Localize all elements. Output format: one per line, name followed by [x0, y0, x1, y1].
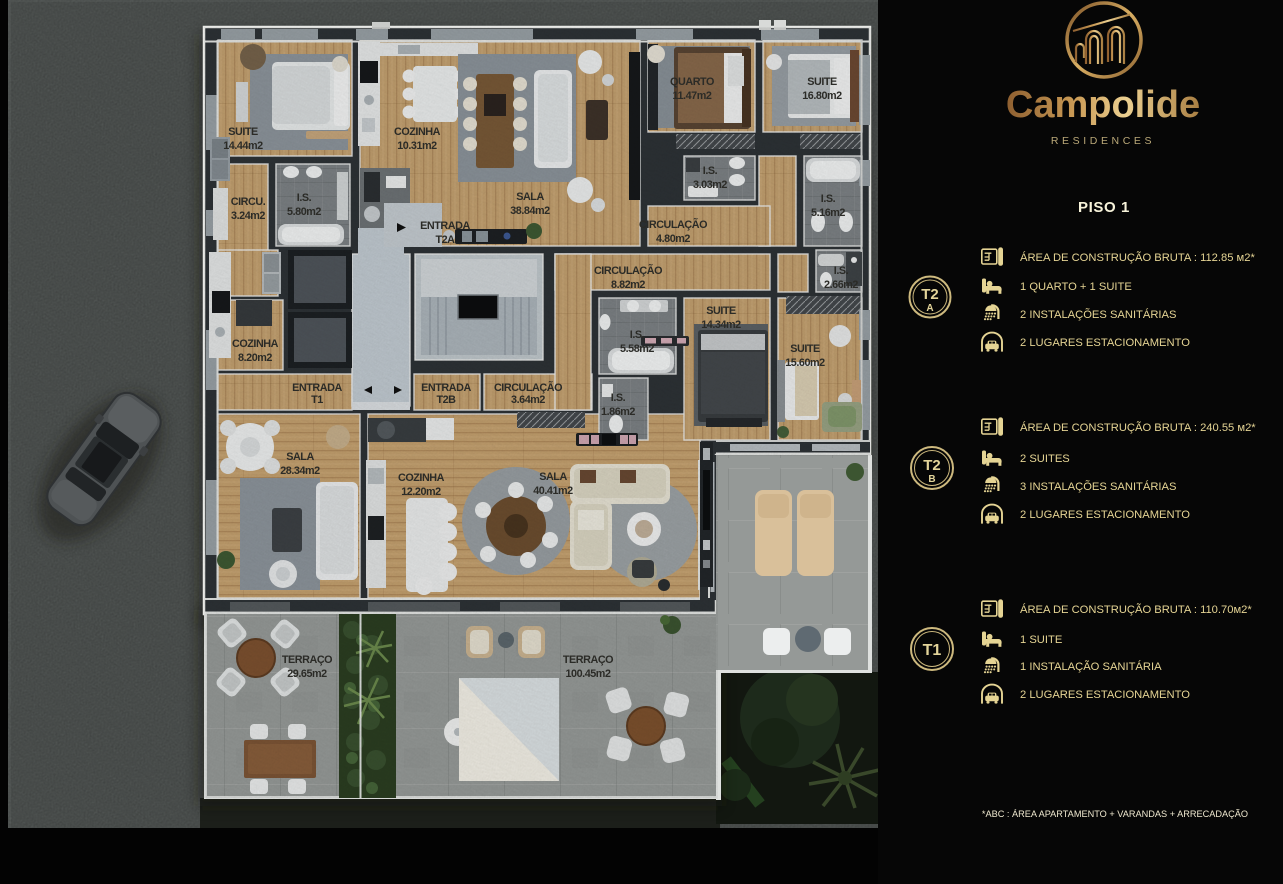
svg-text:12.20m2: 12.20m2: [401, 486, 441, 498]
svg-text:11.47m2: 11.47m2: [673, 90, 712, 102]
svg-text:I.S.: I.S.: [703, 165, 718, 177]
svg-text:SALA: SALA: [539, 471, 567, 483]
svg-text:CIRCULAÇÃO: CIRCULAÇÃO: [594, 264, 662, 277]
svg-text:I.S.: I.S.: [611, 392, 626, 404]
svg-text:ÁREA DE CONSTRUÇÃO BRUTA : 11: ÁREA DE CONSTRUÇÃO BRUTA : 112.85 м2*: [1020, 251, 1255, 264]
svg-text:SUITE: SUITE: [807, 76, 837, 88]
svg-text:T2: T2: [923, 457, 941, 474]
svg-text:5.16m2: 5.16m2: [811, 207, 845, 219]
svg-text:28.34m2: 28.34m2: [280, 465, 320, 477]
svg-text:A: A: [926, 303, 933, 314]
svg-text:I.S.: I.S.: [630, 329, 645, 341]
svg-text:TERRAÇO: TERRAÇO: [563, 654, 613, 666]
svg-text:2 LUGARES ESTACIONAMENTO: 2 LUGARES ESTACIONAMENTO: [1020, 337, 1190, 349]
svg-text:8.82m2: 8.82m2: [611, 279, 645, 291]
svg-text:3 INSTALAÇÕES SANITÁRIAS: 3 INSTALAÇÕES SANITÁRIAS: [1020, 480, 1176, 493]
svg-text:14.44m2: 14.44m2: [223, 140, 263, 152]
svg-text:I.S.: I.S.: [297, 192, 312, 204]
svg-text:1.86m2: 1.86m2: [601, 406, 635, 418]
svg-text:SALA: SALA: [286, 451, 314, 463]
svg-text:*ABC : ÁREA APARTAMENTO + VAR: *ABC : ÁREA APARTAMENTO + VARANDAS + ARR…: [982, 809, 1248, 819]
svg-text:B: B: [928, 474, 935, 485]
svg-text:SUITE: SUITE: [790, 343, 820, 355]
svg-text:COZINHA: COZINHA: [398, 472, 445, 484]
svg-text:ÁREA DE CONSTRUÇÃO BRUTA : 24: ÁREA DE CONSTRUÇÃO BRUTA : 240.55 м2*: [1020, 421, 1256, 434]
svg-text:I.S.: I.S.: [821, 193, 836, 205]
svg-text:1 QUARTO + 1 SUITE: 1 QUARTO + 1 SUITE: [1020, 281, 1132, 293]
svg-text:2 INSTALAÇÕES SANITÁRIAS: 2 INSTALAÇÕES SANITÁRIAS: [1020, 308, 1176, 321]
svg-text:5.80m2: 5.80m2: [287, 206, 321, 218]
svg-text:ENTRADA: ENTRADA: [421, 382, 471, 394]
svg-text:2 LUGARES ESTACIONAMENTO: 2 LUGARES ESTACIONAMENTO: [1020, 509, 1190, 521]
svg-text:SUITE: SUITE: [706, 305, 736, 317]
svg-text:T1: T1: [311, 394, 323, 406]
svg-text:I.S.: I.S.: [834, 265, 849, 277]
svg-text:SALA: SALA: [516, 191, 544, 203]
svg-text:5.58m2: 5.58m2: [620, 343, 654, 355]
svg-text:QUARTO: QUARTO: [670, 76, 714, 88]
svg-text:4.80m2: 4.80m2: [656, 233, 690, 245]
svg-text:40.41m2: 40.41m2: [533, 485, 573, 497]
svg-text:16.80m2: 16.80m2: [802, 90, 842, 102]
svg-text:1 SUITE: 1 SUITE: [1020, 634, 1062, 646]
svg-text:PISO 1: PISO 1: [1078, 199, 1130, 216]
svg-text:T2A: T2A: [435, 234, 455, 246]
svg-text:3.24m2: 3.24m2: [231, 210, 265, 222]
svg-text:CIRCULAÇÃO: CIRCULAÇÃO: [639, 218, 707, 231]
svg-text:Campolide: Campolide: [1006, 84, 1200, 126]
svg-text:14.34m2: 14.34m2: [701, 319, 741, 331]
svg-text:RESIDENCES: RESIDENCES: [1051, 135, 1155, 147]
svg-text:2 LUGARES ESTACIONAMENTO: 2 LUGARES ESTACIONAMENTO: [1020, 689, 1190, 701]
svg-text:38.84m2: 38.84m2: [510, 205, 550, 217]
svg-text:T1: T1: [923, 642, 942, 659]
svg-text:T2: T2: [921, 286, 939, 303]
svg-text:SUITE: SUITE: [228, 126, 258, 138]
svg-text:ÁREA DE CONSTRUÇÃO BRUTA : 11: ÁREA DE CONSTRUÇÃO BRUTA : 110.70м2*: [1020, 603, 1252, 616]
svg-text:2 SUITES: 2 SUITES: [1020, 453, 1070, 465]
svg-text:100.45m2: 100.45m2: [565, 668, 610, 680]
svg-text:CIRCULAÇÃO: CIRCULAÇÃO: [494, 381, 562, 394]
svg-text:COZINHA: COZINHA: [232, 338, 279, 350]
svg-text:15.60m2: 15.60m2: [785, 357, 825, 369]
svg-text:COZINHA: COZINHA: [394, 126, 441, 138]
svg-text:8.20m2: 8.20m2: [238, 352, 272, 364]
svg-text:2.66m2: 2.66m2: [824, 279, 858, 291]
svg-text:3.64m2: 3.64m2: [511, 394, 545, 406]
svg-text:ENTRADA: ENTRADA: [420, 220, 470, 232]
svg-text:ENTRADA: ENTRADA: [292, 382, 342, 394]
svg-text:T2B: T2B: [436, 394, 456, 406]
svg-text:CIRCU.: CIRCU.: [231, 196, 266, 208]
svg-text:10.31m2: 10.31m2: [397, 140, 437, 152]
svg-text:1 INSTALAÇÃO SANITÁRIA: 1 INSTALAÇÃO SANITÁRIA: [1020, 660, 1162, 673]
svg-text:29.65m2: 29.65m2: [287, 668, 327, 680]
svg-text:TERRAÇO: TERRAÇO: [282, 654, 332, 666]
svg-text:3.03m2: 3.03m2: [693, 179, 727, 191]
